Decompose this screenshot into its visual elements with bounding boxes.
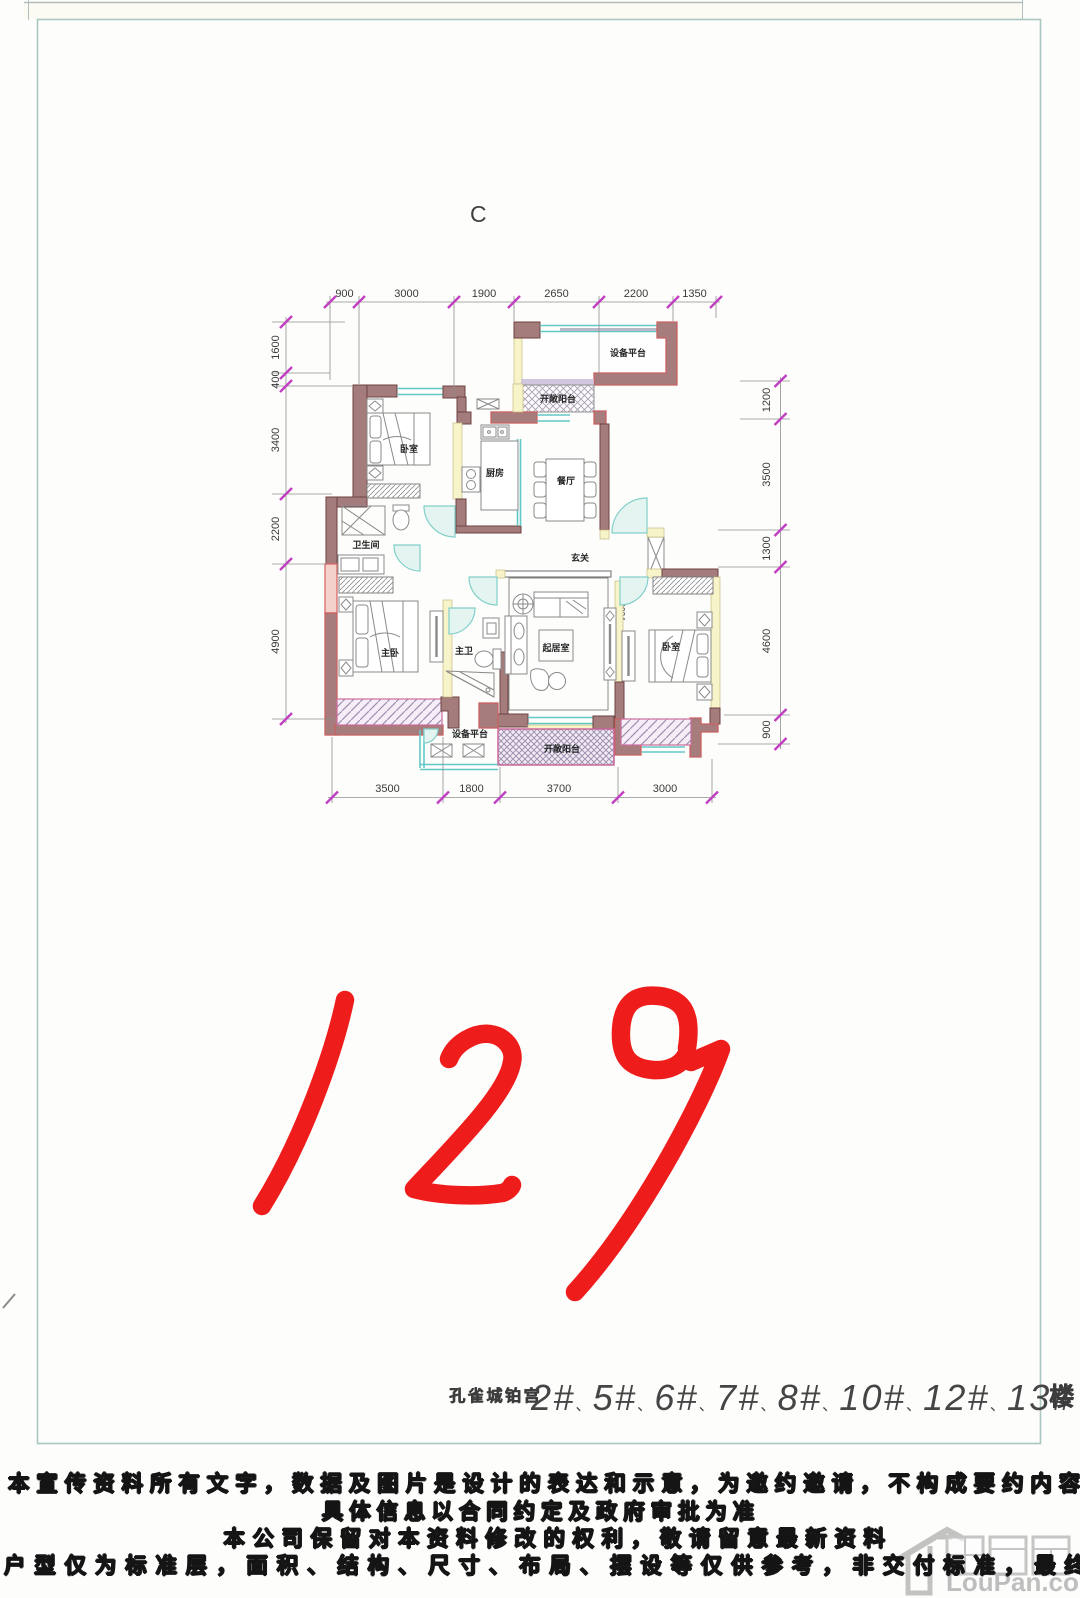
svg-text:3500: 3500: [375, 783, 399, 795]
svg-text:900: 900: [335, 288, 353, 300]
svg-text:卧室: 卧室: [662, 641, 680, 652]
svg-text:主卫: 主卫: [455, 645, 473, 656]
svg-text:4600: 4600: [761, 629, 773, 653]
svg-text:开敞阳台: 开敞阳台: [544, 743, 580, 754]
svg-text:1900: 1900: [472, 288, 496, 300]
svg-text:卧室: 卧室: [400, 443, 418, 454]
svg-text:1350: 1350: [682, 288, 706, 300]
svg-text:设备平台: 设备平台: [610, 347, 646, 358]
svg-text:开敞阳台: 开敞阳台: [540, 393, 576, 404]
svg-text:1300: 1300: [761, 536, 773, 560]
svg-text:餐厅: 餐厅: [556, 475, 575, 486]
svg-text:主卧: 主卧: [381, 647, 399, 658]
svg-text:C: C: [470, 201, 487, 227]
svg-text:2200: 2200: [270, 517, 282, 541]
svg-text:1800: 1800: [459, 783, 483, 795]
svg-text:3500: 3500: [761, 462, 773, 486]
svg-text:4900: 4900: [270, 629, 282, 653]
svg-text:起居室: 起居室: [541, 642, 569, 653]
svg-text:1200: 1200: [761, 388, 773, 412]
svg-text:3400: 3400: [270, 428, 282, 452]
svg-text:卫生间: 卫生间: [352, 539, 379, 550]
svg-text:2650: 2650: [544, 288, 568, 300]
svg-text:设备平台: 设备平台: [452, 728, 488, 739]
svg-text:3700: 3700: [547, 783, 571, 795]
svg-text:厨房: 厨房: [486, 467, 504, 478]
svg-text:3000: 3000: [394, 288, 418, 300]
svg-text:900: 900: [761, 720, 773, 738]
svg-text:玄关: 玄关: [571, 552, 589, 563]
svg-text:400: 400: [270, 370, 282, 388]
svg-text:3000: 3000: [653, 783, 677, 795]
svg-text:1600: 1600: [270, 335, 282, 359]
svg-text:2200: 2200: [624, 288, 648, 300]
